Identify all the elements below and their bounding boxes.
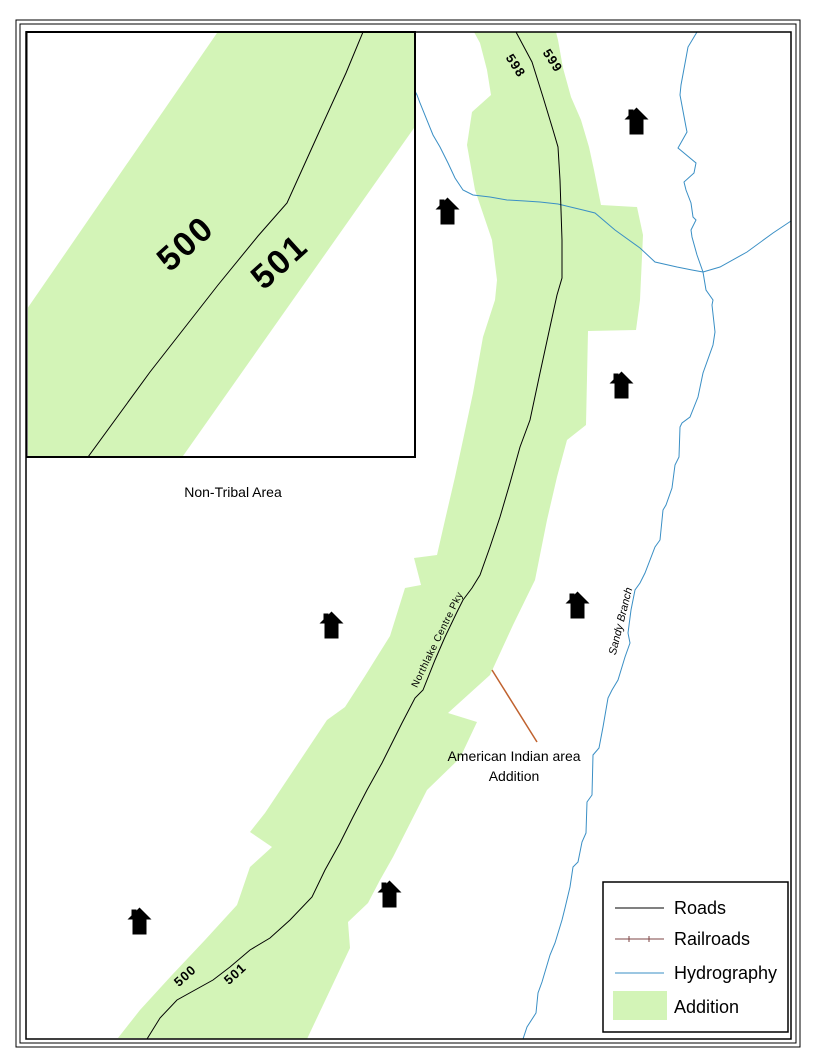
stream-tributary-east — [703, 221, 791, 272]
annotation-leader-line — [492, 670, 537, 742]
legend-label-addition: Addition — [674, 997, 739, 1017]
house-icon — [566, 592, 590, 619]
house-icon — [128, 908, 152, 935]
legend-addition-swatch — [613, 991, 667, 1020]
inset-map: 500 501 — [27, 32, 416, 457]
map-page: 598 599 500 501 Northlake Centre Pky San… — [0, 0, 816, 1056]
annotation-line2: Addition — [489, 768, 540, 784]
house-icon — [625, 108, 649, 135]
legend-label-railroads: Railroads — [674, 929, 750, 949]
house-icon — [436, 198, 460, 225]
house-icon — [378, 881, 402, 908]
house-icon — [610, 372, 634, 399]
stream-name-label: Sandy Branch — [607, 586, 635, 656]
non-tribal-area-label: Non-Tribal Area — [184, 484, 282, 500]
legend: Roads Railroads Hydrography Addition — [603, 882, 788, 1032]
annotation-line1: American Indian area — [447, 748, 580, 764]
legend-label-hydrography: Hydrography — [674, 963, 777, 983]
map-canvas: 598 599 500 501 Northlake Centre Pky San… — [0, 0, 816, 1056]
house-icon — [320, 612, 344, 639]
legend-label-roads: Roads — [674, 898, 726, 918]
